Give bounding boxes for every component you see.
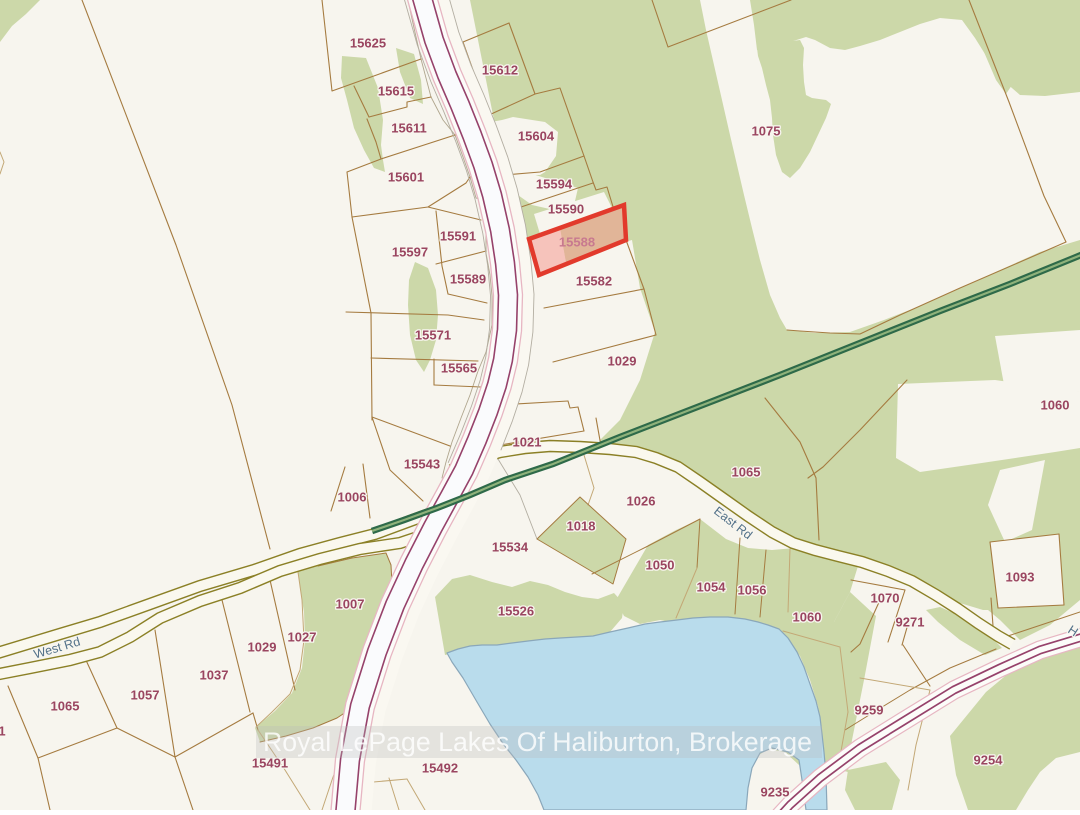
svg-text:1050: 1050 (646, 558, 675, 573)
svg-text:15611: 15611 (391, 121, 426, 136)
svg-text:15625: 15625 (350, 36, 386, 51)
svg-text:1065: 1065 (732, 465, 761, 480)
svg-text:1006: 1006 (338, 490, 367, 505)
svg-text:1027: 1027 (288, 630, 317, 645)
svg-text:15534: 15534 (492, 540, 529, 555)
svg-text:15589: 15589 (450, 272, 486, 287)
svg-text:Royal LePage Lakes Of Haliburt: Royal LePage Lakes Of Haliburton, Broker… (263, 727, 812, 757)
svg-text:1056: 1056 (738, 583, 767, 598)
svg-text:1029: 1029 (608, 354, 637, 369)
svg-text:1029: 1029 (248, 640, 277, 655)
svg-text:15615: 15615 (378, 84, 414, 99)
svg-text:15612: 15612 (482, 63, 518, 78)
svg-text:9271: 9271 (896, 615, 925, 630)
svg-text:1060: 1060 (793, 610, 822, 625)
svg-text:9235: 9235 (761, 785, 790, 800)
svg-text:1075: 1075 (752, 124, 781, 139)
svg-text:15594: 15594 (536, 177, 573, 192)
svg-text:15604: 15604 (518, 129, 555, 144)
svg-text:15571: 15571 (415, 328, 451, 343)
svg-text:15492: 15492 (422, 761, 458, 776)
svg-text:9254: 9254 (974, 753, 1004, 768)
svg-text:9259: 9259 (855, 703, 884, 718)
svg-text:15597: 15597 (392, 245, 428, 260)
svg-text:1065: 1065 (51, 699, 80, 714)
svg-text:1093: 1093 (1006, 570, 1035, 585)
svg-text:15588: 15588 (559, 235, 595, 250)
svg-text:1026: 1026 (627, 494, 656, 509)
svg-text:1037: 1037 (200, 668, 229, 683)
svg-text:15543: 15543 (404, 457, 440, 472)
svg-text:15582: 15582 (576, 274, 612, 289)
svg-text:15591: 15591 (440, 229, 476, 244)
svg-text:15590: 15590 (548, 202, 584, 217)
svg-text:1057: 1057 (131, 688, 160, 703)
svg-text:1060: 1060 (1041, 398, 1070, 413)
svg-text:1007: 1007 (336, 597, 365, 612)
svg-text:1070: 1070 (871, 591, 900, 606)
svg-text:15601: 15601 (388, 170, 424, 185)
svg-text:1021: 1021 (513, 435, 542, 450)
svg-text:1: 1 (0, 724, 6, 739)
svg-text:1054: 1054 (697, 580, 727, 595)
svg-text:15526: 15526 (498, 604, 534, 619)
svg-text:15565: 15565 (441, 361, 477, 376)
svg-text:1018: 1018 (567, 519, 596, 534)
